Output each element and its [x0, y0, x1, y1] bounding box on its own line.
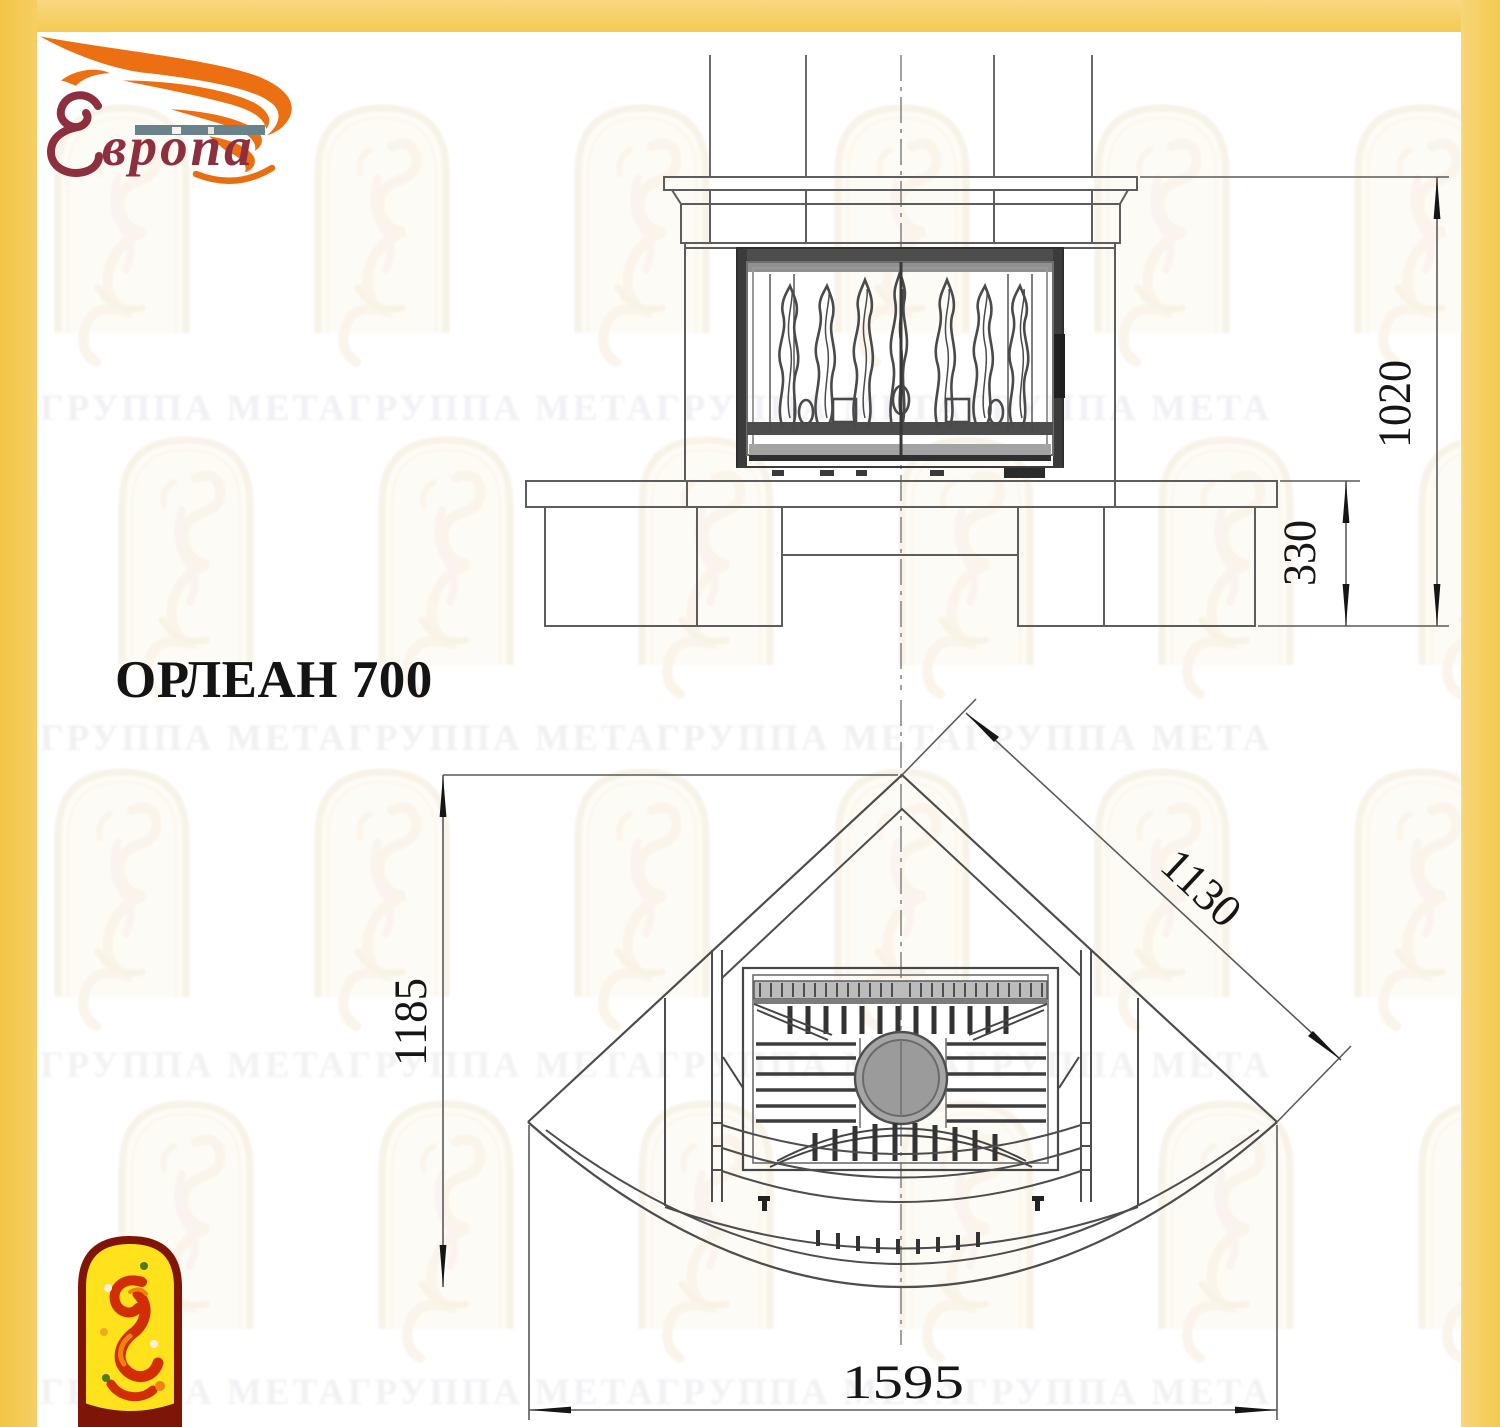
svg-text:1020: 1020	[1369, 360, 1421, 448]
svg-text:1130: 1130	[1151, 838, 1252, 937]
svg-text:330: 330	[1274, 520, 1326, 586]
svg-text:1185: 1185	[385, 978, 437, 1066]
svg-text:1595: 1595	[842, 1356, 964, 1409]
svg-text:вропа: вропа	[102, 116, 255, 177]
